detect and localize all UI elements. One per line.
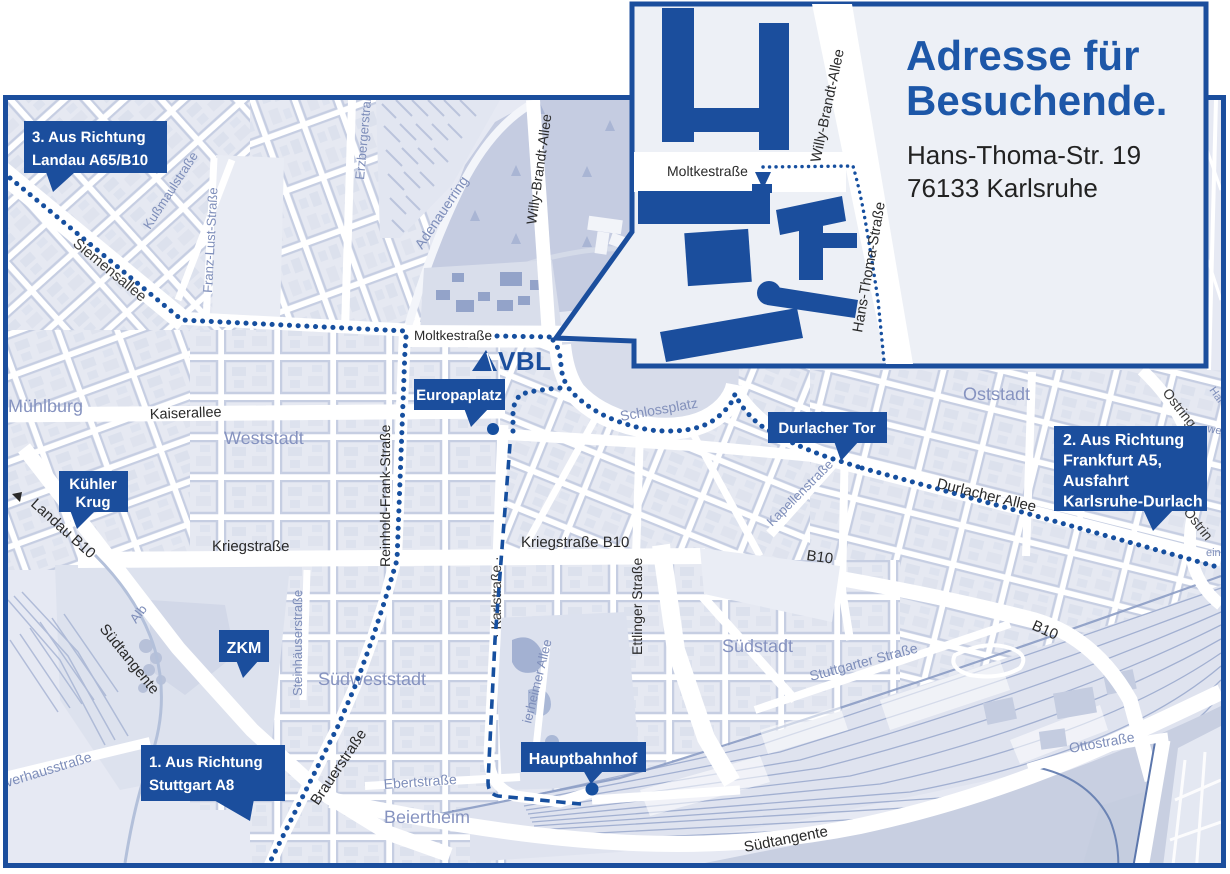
svg-text:Moltkestraße: Moltkestraße: [667, 163, 748, 179]
svg-text:Kühler: Kühler: [69, 476, 117, 493]
svg-text:Südstadt: Südstadt: [722, 636, 793, 656]
svg-text:Durlacher Tor: Durlacher Tor: [778, 420, 875, 437]
svg-text:Kriegstraße: Kriegstraße: [212, 538, 290, 555]
svg-text:Reinhold-Frank-Straße: Reinhold-Frank-Straße: [377, 424, 393, 567]
svg-text:Adresse für: Adresse für: [906, 32, 1139, 79]
svg-text:Moltkestraße: Moltkestraße: [414, 328, 492, 343]
svg-text:ZKM: ZKM: [227, 640, 262, 657]
svg-text:Mühlburg: Mühlburg: [8, 396, 83, 416]
svg-text:Europaplatz: Europaplatz: [416, 387, 502, 404]
svg-text:Beiertheim: Beiertheim: [384, 807, 470, 827]
svg-text:Hans-Thoma-Str. 19: Hans-Thoma-Str. 19: [907, 140, 1141, 170]
svg-text:76133 Karlsruhe: 76133 Karlsruhe: [907, 173, 1098, 203]
svg-text:Weststadt: Weststadt: [224, 428, 304, 448]
svg-text:Hauptbahnhof: Hauptbahnhof: [529, 751, 638, 768]
svg-text:Krug: Krug: [76, 494, 111, 511]
svg-text:Besuchende.: Besuchende.: [906, 77, 1167, 124]
svg-text:Oststadt: Oststadt: [963, 384, 1030, 404]
svg-text:Landau A65/B10: Landau A65/B10: [32, 152, 148, 169]
svg-text:Stuttgart A8: Stuttgart A8: [149, 777, 234, 794]
svg-text:VBL: VBL: [498, 346, 552, 376]
svg-text:Steinhäuserstraße: Steinhäuserstraße: [290, 590, 305, 696]
svg-text:Kriegstraße B10: Kriegstraße B10: [521, 534, 629, 551]
svg-text:Frankfurt A5,: Frankfurt A5,: [1063, 453, 1162, 470]
svg-text:Ausfahrt: Ausfahrt: [1063, 473, 1129, 490]
svg-text:ein: ein: [1206, 547, 1221, 559]
svg-text:Ettlinger Straße: Ettlinger Straße: [629, 558, 645, 655]
svg-text:3. Aus Richtung: 3. Aus Richtung: [32, 129, 146, 146]
svg-text:Kaiserallee: Kaiserallee: [150, 405, 222, 423]
svg-text:Südweststadt: Südweststadt: [318, 669, 426, 689]
svg-text:1. Aus Richtung: 1. Aus Richtung: [149, 754, 263, 771]
svg-text:Karlsruhe-Durlach: Karlsruhe-Durlach: [1063, 494, 1203, 511]
svg-text:2. Aus Richtung: 2. Aus Richtung: [1063, 432, 1184, 449]
